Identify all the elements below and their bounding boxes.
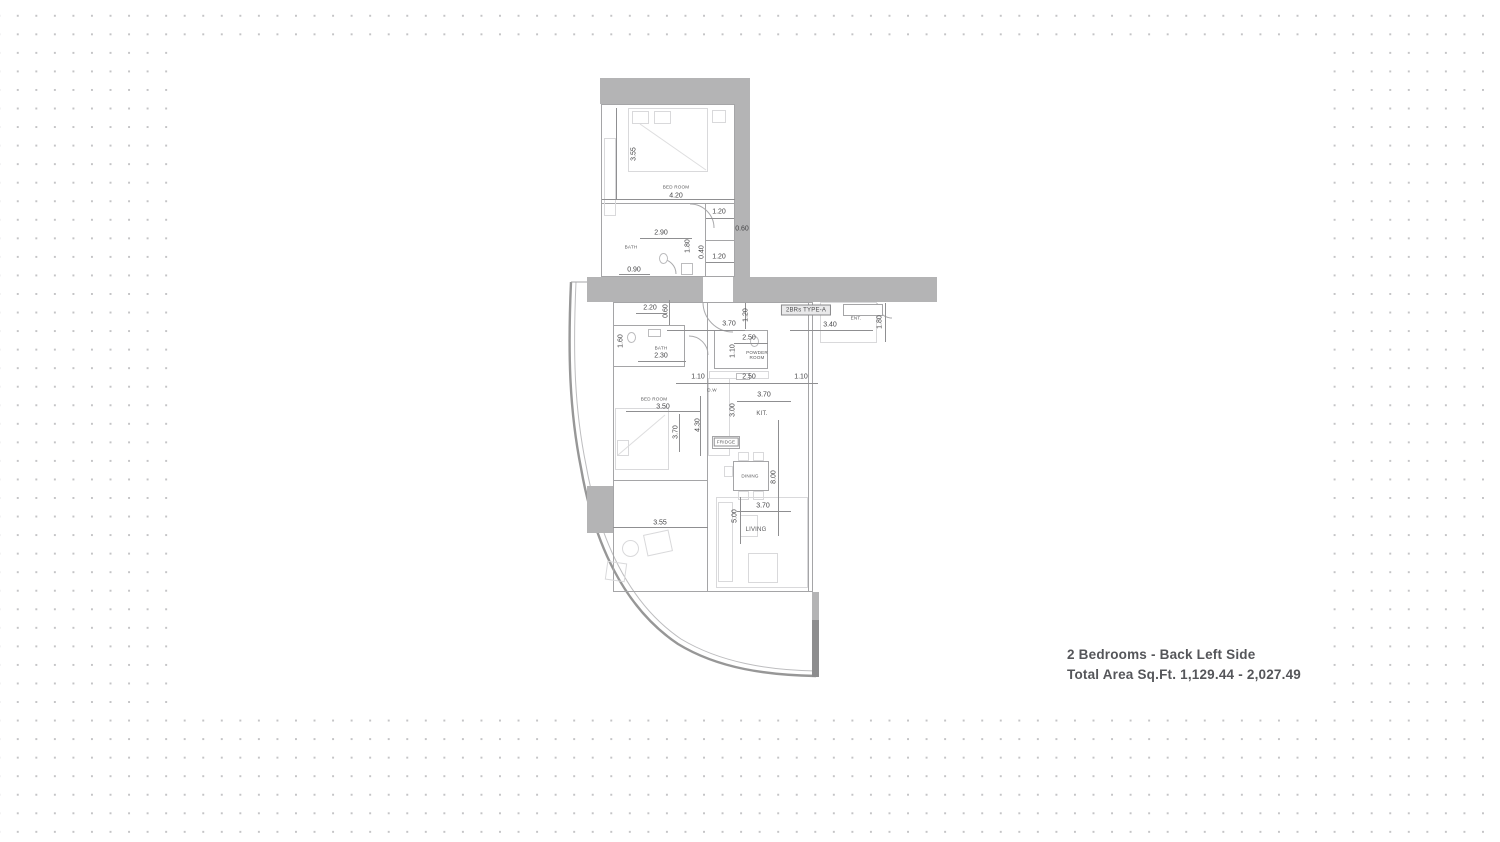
dimension-label: 1.60	[618, 334, 625, 348]
bed1-pillow-right	[654, 111, 671, 124]
bath1-sink	[681, 263, 693, 275]
dimension-label: 1.10	[730, 344, 737, 358]
dimension-line	[885, 303, 886, 342]
bath1-toilet	[659, 253, 668, 264]
dimension-line	[778, 420, 779, 536]
dimension-label: 1.20	[712, 209, 726, 216]
dimension-line	[790, 330, 873, 331]
dimension-label: 0.40	[699, 245, 706, 259]
dimension-line	[616, 108, 617, 199]
dimension-line	[706, 262, 734, 263]
dimension-line	[619, 274, 650, 275]
bed1-nightstand	[712, 110, 726, 123]
dimension-label: 2.90	[654, 230, 668, 237]
bed2	[615, 408, 669, 470]
dimension-label: 3.70	[673, 425, 680, 439]
dimension-label: 3.50	[656, 404, 670, 411]
dimension-line	[626, 411, 701, 412]
room-label: LIVING	[746, 527, 767, 534]
bath1-closet-shelf	[705, 240, 735, 241]
bath2-sink	[648, 329, 661, 337]
bedroom2-bottom-wall	[613, 480, 707, 481]
dimension-label: 3.55	[653, 520, 667, 527]
dining-chair-top-right	[753, 452, 764, 461]
armchair	[748, 553, 778, 583]
wall-right-upper	[735, 104, 750, 277]
bed2-pillow	[617, 440, 629, 456]
dimension-label: 5.00	[732, 509, 739, 523]
dimension-label: 2.20	[643, 305, 657, 312]
room-label: FRIDGE	[714, 438, 739, 447]
room-label: DINING	[741, 474, 758, 479]
bed1-pillow-left	[632, 111, 649, 124]
dimension-label: 3.00	[730, 403, 737, 417]
caption-title: 2 Bedrooms - Back Left Side	[1067, 645, 1301, 665]
room-label: ENT.	[851, 316, 862, 321]
wall-right-lower-dark	[812, 620, 819, 677]
dimension-label: 2.30	[654, 353, 668, 360]
dimension-label: 2.50	[742, 335, 756, 342]
dimension-label: 8.00	[771, 470, 778, 484]
wall-top-band	[600, 78, 750, 104]
dimension-label: 1.10	[691, 374, 705, 381]
dimension-label: 0.60	[735, 226, 749, 233]
dimension-label: 3.70	[722, 321, 736, 328]
bath2-toilet	[627, 332, 636, 343]
dimension-label: 4.20	[669, 193, 683, 200]
dimension-line	[638, 361, 686, 362]
dining-chair-bottom-right	[753, 491, 764, 500]
dimension-line	[737, 511, 791, 512]
wall-right-lower-light	[812, 592, 819, 622]
plan-caption: 2 Bedrooms - Back Left Side Total Area S…	[1067, 645, 1301, 684]
dimension-line	[676, 383, 818, 384]
dimension-line	[706, 218, 734, 219]
dimension-label: 3.40	[823, 322, 837, 329]
dimension-line	[737, 401, 791, 402]
caption-subtitle: Total Area Sq.Ft. 1,129.44 - 2,027.49	[1067, 665, 1301, 685]
dimension-label: 0.60	[663, 304, 670, 318]
wall-mid-band-right	[733, 277, 937, 302]
dimension-label: 3.70	[756, 503, 770, 510]
room-label: KIT.	[756, 411, 767, 418]
dimension-label: 1.80	[877, 315, 884, 329]
living-inner-wall	[808, 302, 809, 592]
dimension-label: 1.10	[794, 374, 808, 381]
dining-chair-top-left	[738, 452, 749, 461]
dimension-label: 1.20	[712, 254, 726, 261]
wall-column-bottom-left	[587, 486, 613, 533]
room-label: BED ROOM	[641, 397, 668, 402]
room-label: POWDER ROOM	[746, 350, 768, 360]
dimension-line	[734, 343, 768, 344]
room-label: 2BRs TYPE-A	[781, 305, 831, 316]
room-label: BED ROOM	[663, 185, 690, 190]
dimension-line	[667, 330, 745, 331]
bath1-partition	[601, 203, 735, 204]
dimension-label: 4.30	[695, 418, 702, 432]
dimension-label: 1.20	[743, 308, 750, 322]
dimension-label: 0.90	[627, 267, 641, 274]
dimension-line	[613, 527, 708, 528]
room-label: BATH	[625, 245, 638, 250]
room-label: BATH	[655, 346, 668, 351]
dining-chair-left	[724, 466, 733, 477]
dimension-label: 2.50	[742, 374, 756, 381]
balcony-chair-round	[622, 540, 639, 557]
floor-plan: BED ROOMBATHBATHPOWDER ROOMBED ROOMKIT.D…	[0, 0, 1500, 842]
balcony-planter	[605, 561, 627, 583]
dimension-label: 3.55	[631, 147, 638, 161]
dimension-label: 3.70	[757, 392, 771, 399]
dimension-label: 1.80	[685, 239, 692, 253]
room-label: D.W	[707, 388, 717, 393]
wall-mid-band-left	[587, 277, 703, 302]
dimension-line	[740, 497, 741, 544]
bedroom1-wardrobe	[604, 138, 616, 216]
